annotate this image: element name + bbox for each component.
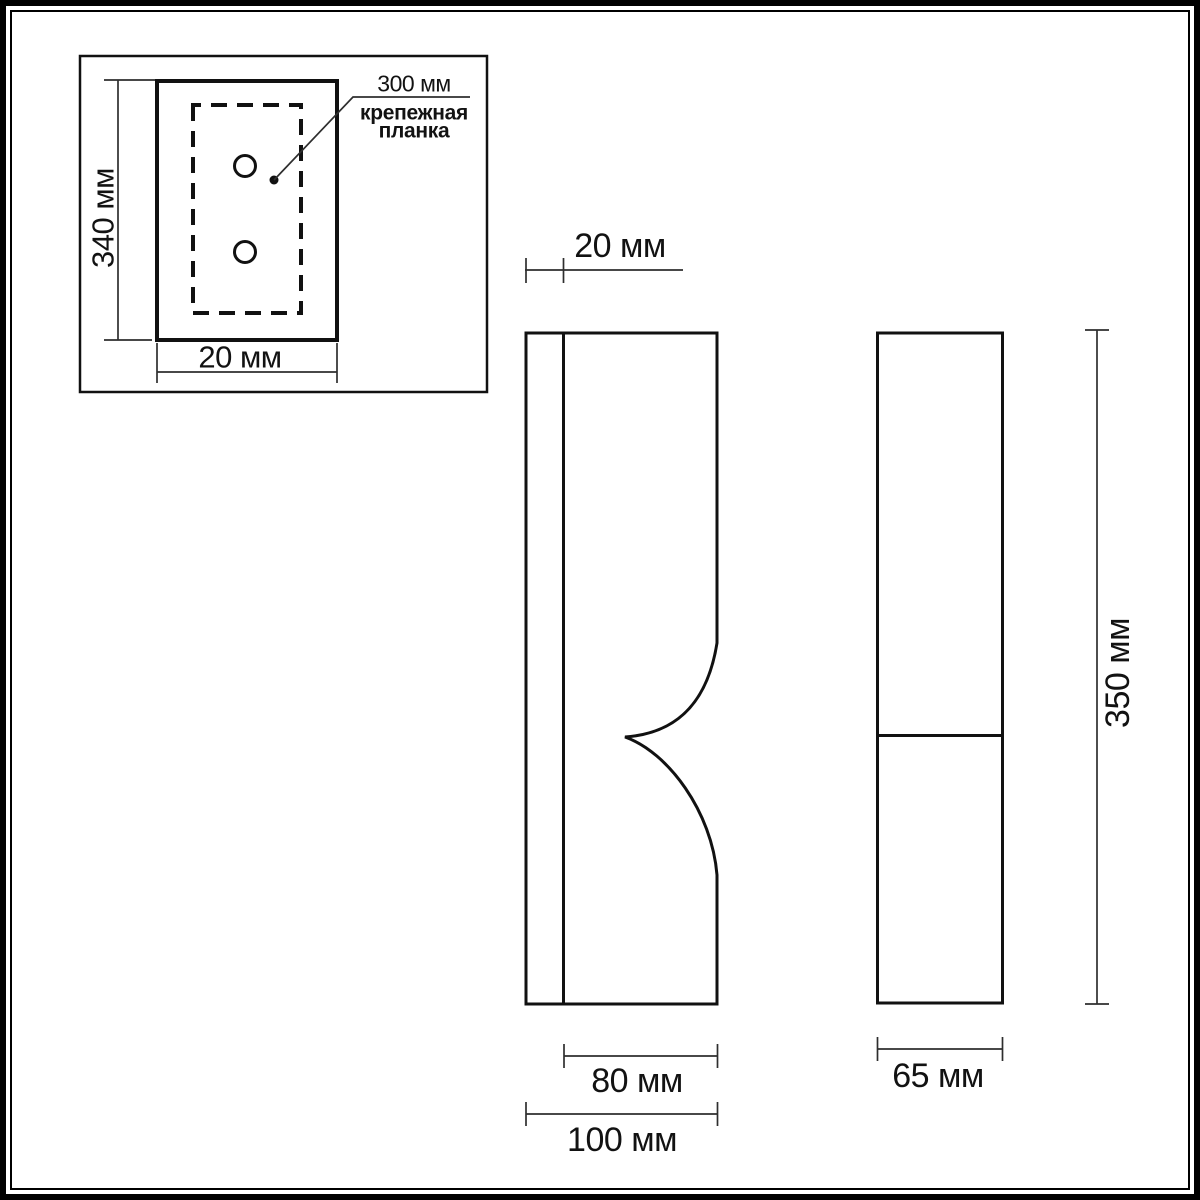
front-overall-width-label: 100 мм bbox=[567, 1123, 677, 1157]
inset-width-label: 20 мм bbox=[198, 342, 281, 373]
linework-svg bbox=[0, 0, 1200, 1200]
front-view-outline bbox=[526, 333, 717, 1004]
front-body-width-label: 80 мм bbox=[591, 1064, 683, 1098]
side-height-label: 350 мм bbox=[1101, 618, 1135, 728]
screw-hole-bottom bbox=[235, 242, 256, 263]
mounting-bracket-dashed-outline bbox=[193, 105, 301, 313]
front-depth-label: 20 мм bbox=[574, 229, 666, 263]
inset-height-label: 340 мм bbox=[88, 168, 119, 268]
annotation-value-label: 300 мм bbox=[377, 73, 450, 96]
backplate-outline bbox=[157, 81, 337, 340]
side-width-label: 65 мм bbox=[892, 1059, 984, 1093]
screw-hole-top bbox=[235, 156, 256, 177]
side-view-outline bbox=[878, 333, 1003, 1003]
annotation-caption-line2: планка bbox=[379, 121, 450, 142]
drawing-canvas: 340 мм 20 мм 300 мм крепежная планка 20 … bbox=[0, 0, 1200, 1200]
